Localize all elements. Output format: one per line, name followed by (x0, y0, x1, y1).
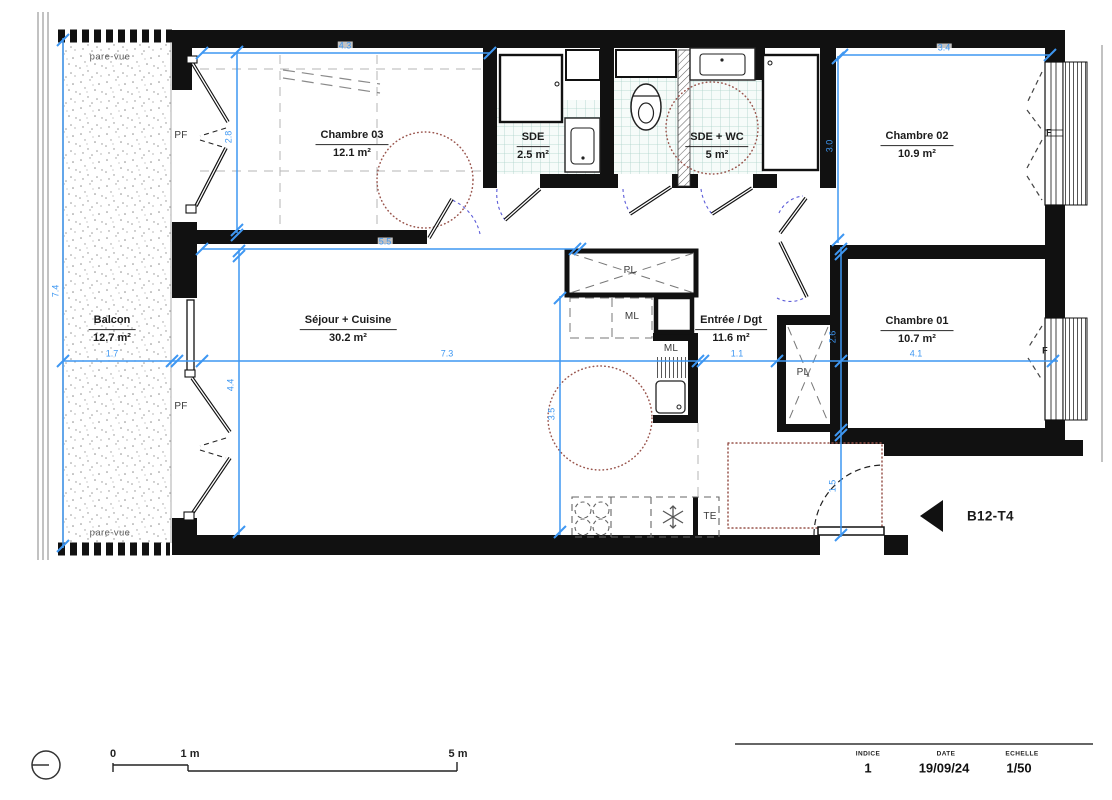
shutter-chambre02 (1063, 62, 1087, 205)
cistern-shelf-wc (616, 50, 676, 77)
fixtures (500, 48, 818, 413)
fridge-snowflake-icon (663, 506, 683, 528)
window-chambre01 (1028, 318, 1087, 420)
balcony-deck (58, 36, 172, 549)
shower-sde-wc (763, 55, 818, 170)
scale-bar (113, 762, 457, 772)
toilet-icon (631, 84, 661, 130)
vanity-sde-wc (690, 48, 755, 80)
entrance-door (814, 465, 884, 535)
window-chambre02 (1027, 62, 1087, 205)
floorplan-drawing (0, 0, 1112, 800)
cooktop-icon (575, 502, 609, 535)
unit-arrow-icon (920, 500, 943, 532)
floorplan-page: B12-T4 0 1 m 5 m INDICE 1 DATE 19/09/24 … (0, 0, 1112, 800)
washer-sink-unit (656, 357, 686, 413)
entry-zone-dotted (728, 443, 882, 528)
shutter-chambre01 (1063, 318, 1087, 420)
vanity-sde (565, 118, 600, 172)
wardrobe-dashes (283, 70, 380, 93)
shower-sde (500, 55, 562, 122)
niche-sde (566, 50, 600, 80)
duct-box (656, 297, 692, 332)
drainboard (656, 357, 686, 378)
partition-hatched (678, 50, 690, 186)
north-arrow-icon (32, 751, 60, 779)
